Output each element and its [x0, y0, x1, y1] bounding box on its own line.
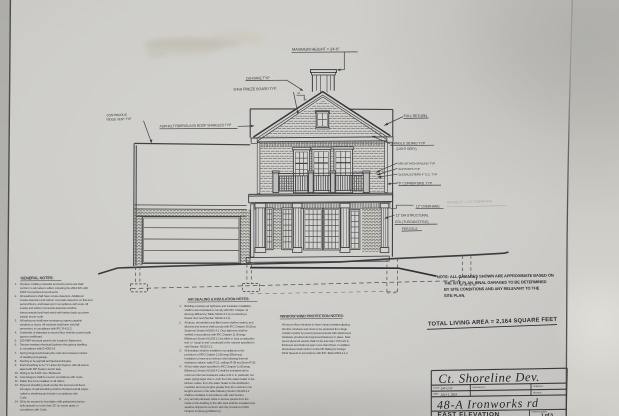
svg-text:14.: 14.: [15, 399, 19, 403]
svg-text:5.: 5.: [179, 397, 182, 401]
svg-text:PER DTLS: PER DTLS: [402, 227, 418, 231]
svg-text:6.: 6.: [15, 343, 18, 347]
svg-text:JULY 1, 2019: JULY 1, 2019: [440, 393, 457, 397]
svg-text:48-A Ironworks rd: 48-A Ironworks rd: [437, 396, 539, 412]
svg-text:2.: 2.: [179, 320, 182, 324]
svg-text:2x2 BALUSTERS 4" O.C. TYP: 2x2 BALUSTERS 4" O.C. TYP: [398, 173, 437, 177]
svg-text:1/4"=1'-0": 1/4"=1'-0": [440, 386, 453, 390]
svg-text:(LIGHT GREY): (LIGHT GREY): [397, 147, 417, 151]
svg-text:2.: 2.: [15, 294, 18, 298]
svg-text:SCALE:: SCALE:: [433, 386, 440, 389]
svg-text:MIN 36" HIGH RAILING TYP: MIN 36" HIGH RAILING TYP: [398, 161, 435, 165]
svg-text:1 of 3: 1 of 3: [541, 413, 553, 416]
svg-text:1.: 1.: [15, 282, 18, 286]
svg-text:4x4 POSTS TYP: 4x4 POSTS TYP: [398, 167, 420, 171]
svg-text:EAST ELEVATION: EAST ELEVATION: [438, 411, 500, 416]
svg-text:WINDOW WIND PROTECTION NOTES:: WINDOW WIND PROTECTION NOTES:: [280, 314, 344, 319]
svg-text:4.: 4.: [179, 365, 182, 369]
svg-text:AIR SEALING & INSULATION NOTES: AIR SEALING & INSULATION NOTES:: [187, 297, 249, 302]
svg-text:12" DIA STRUCTURAL: 12" DIA STRUCTURAL: [396, 213, 429, 217]
svg-text:1.: 1.: [179, 304, 182, 308]
svg-text:nailed to sheathing and studs: nailed to sheathing and studs in complia…: [20, 391, 78, 395]
svg-text:9.: 9.: [15, 363, 18, 367]
svg-text:MAXIMUM HEIGHT = 24'-6": MAXIMUM HEIGHT = 24'-6": [292, 46, 340, 51]
svg-text:SITE PLAN.: SITE PLAN.: [444, 293, 465, 298]
svg-text:REVISED:: REVISED:: [533, 392, 542, 394]
svg-text:Ct. Shoreline Dev.: Ct. Shoreline Dev.: [438, 370, 540, 386]
svg-text:DATE:: DATE:: [433, 393, 439, 396]
svg-text:COL.(TUSCAN STYLE): COL.(TUSCAN STYLE): [395, 220, 429, 224]
svg-text:5/4x8 FRIEZE BOARD TYP.: 5/4x8 FRIEZE BOARD TYP.: [233, 87, 277, 92]
svg-text:7.: 7.: [15, 351, 18, 355]
svg-text:3.: 3.: [179, 349, 182, 353]
svg-text:Chapter 11 (Energy Efficiency): Chapter 11 (Energy Efficiency).: [184, 409, 221, 413]
svg-text:RIDGE VENT TYP: RIDGE VENT TYP: [106, 117, 131, 122]
svg-text:2x6 RAKE TYP: 2x6 RAKE TYP: [246, 76, 270, 80]
svg-text:FULL RETURN: FULL RETURN: [404, 114, 428, 118]
svg-text:GENERAL NOTES:: GENERAL NOTES:: [20, 275, 53, 280]
svg-text:12" OVERHANG: 12" OVERHANG: [416, 205, 440, 209]
svg-text:3.: 3.: [15, 318, 18, 322]
svg-text:SHINGLE SIDING TYP: SHINGLE SIDING TYP: [390, 142, 426, 146]
svg-text:4.: 4.: [15, 331, 18, 335]
svg-text:6" CORNER BRD. TYP: 6" CORNER BRD. TYP: [399, 181, 433, 185]
svg-text:DESIGNED BY:: DESIGNED BY:: [472, 387, 486, 389]
svg-text:Wind Speeds in accordance with: Wind Speeds in accordance with IRC Table…: [282, 351, 348, 355]
svg-text:13.: 13.: [15, 383, 19, 387]
svg-text:compliance with Code.: compliance with Code.: [20, 407, 48, 411]
svg-text:DRAWN BY:: DRAWN BY:: [533, 385, 544, 388]
